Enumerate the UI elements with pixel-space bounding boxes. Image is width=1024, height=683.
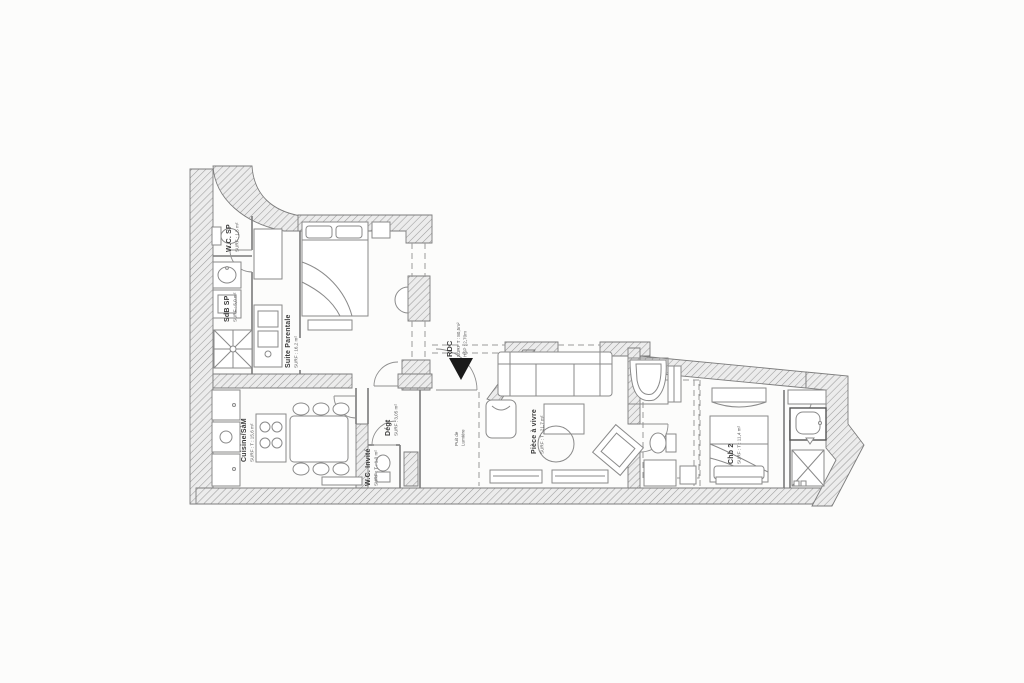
room-name: Puit de [454,431,459,446]
room-name: Pièce à vivre [531,409,538,454]
label-degagement: Dégt SURF : 3,05 m² [385,404,399,436]
bath-cabinet [680,466,696,484]
wall-window-column [408,276,430,321]
wall-mid-left [213,374,352,388]
floor-plan-drawing: W.C. SP SURF : 1,5 m² SdB SP SURF : 5,0 … [0,0,1024,683]
wall-bottom [196,488,832,504]
room-surface: SURF : T : 21,7 m² [540,415,545,454]
room-name: Dégt [385,419,392,436]
radiator [644,460,676,486]
washbasin [790,408,826,444]
toilet-sdb2 [650,433,676,453]
kitchen-island-cooktop [256,414,286,462]
room-name: SdB SP [224,295,231,322]
shower-sde2 [792,450,824,486]
bathroom-closet [668,366,681,402]
column-niche [395,287,408,313]
wall-mid-right [398,374,432,388]
entry-marker [449,358,473,380]
label-wc-sp: W.C. SP SURF : 1,5 m² [226,222,240,252]
entry-name: RDC [445,340,454,357]
room-name: Suite Parentale [285,314,292,368]
wall-top-curve [213,166,301,231]
room-surface: SURF : T : 11,4 m² [737,425,742,464]
label-suite-parentale: Suite Parentale SURF : 16,2 m² [285,314,299,368]
floor-plan: W.C. SP SURF : 1,5 m² SdB SP SURF : 5,0 … [0,0,1024,683]
label-cuisine-sam: Cuisine/SàM SURF : T : 15,6 m² [241,418,255,462]
entrance-arrow-icon [449,358,473,380]
room-surface: SURF : T : 1,0 m² [374,450,379,486]
wall-left [190,169,213,504]
wardrobe-striped [254,229,282,279]
coffee-table [538,404,584,462]
room-surface: SURF : 5,0 m² [233,292,238,322]
window-sill-living-2 [552,470,608,483]
wall-technical-shaft [404,452,418,486]
dining-table [290,403,349,475]
room-surface: SURF : 16,2 m² [294,336,299,368]
tall-cabinet [254,305,282,367]
master-bed [302,222,390,330]
label-puit-de-lumiere: Puit de Lumière [454,429,466,446]
label-sdb-sp: SdB SP SURF : 5,0 m² [224,292,238,322]
room-surface: SURF : 1,5 m² [235,222,240,252]
label-piece-a-vivre: Pièce à vivre SURF : T : 21,7 m² [531,409,545,454]
window-sill-living-1 [490,470,542,483]
bath-cabinet-2 [788,390,826,404]
room-name: Chb 2 [728,444,735,464]
label-rdc: RDC SURF T : 80,5m² HSP : 2,70m [445,322,468,357]
kitchen-counter [212,390,240,486]
entry-surface: SURF T : 80,5m² [456,322,461,357]
room-name: W.C. Invité [365,448,372,486]
room-surface: SURF : T : 15,6 m² [250,423,255,462]
room-surface: SURF : 3,05 m² [394,404,399,436]
armchair [486,400,516,438]
console-chb2 [712,388,766,407]
room-name: Cuisine/SàM [241,418,248,462]
vanity-sdb-sp [213,262,241,288]
kitchen-vent [322,477,362,485]
entry-height: HSP : 2,70m [463,331,468,357]
room-name: W.C. SP [226,224,233,252]
room-name: Lumière [461,429,466,446]
label-wc-invite: W.C. Invité SURF : T : 1,0 m² [365,448,379,486]
sofa [498,352,612,396]
shower-sdb-sp [214,330,252,368]
